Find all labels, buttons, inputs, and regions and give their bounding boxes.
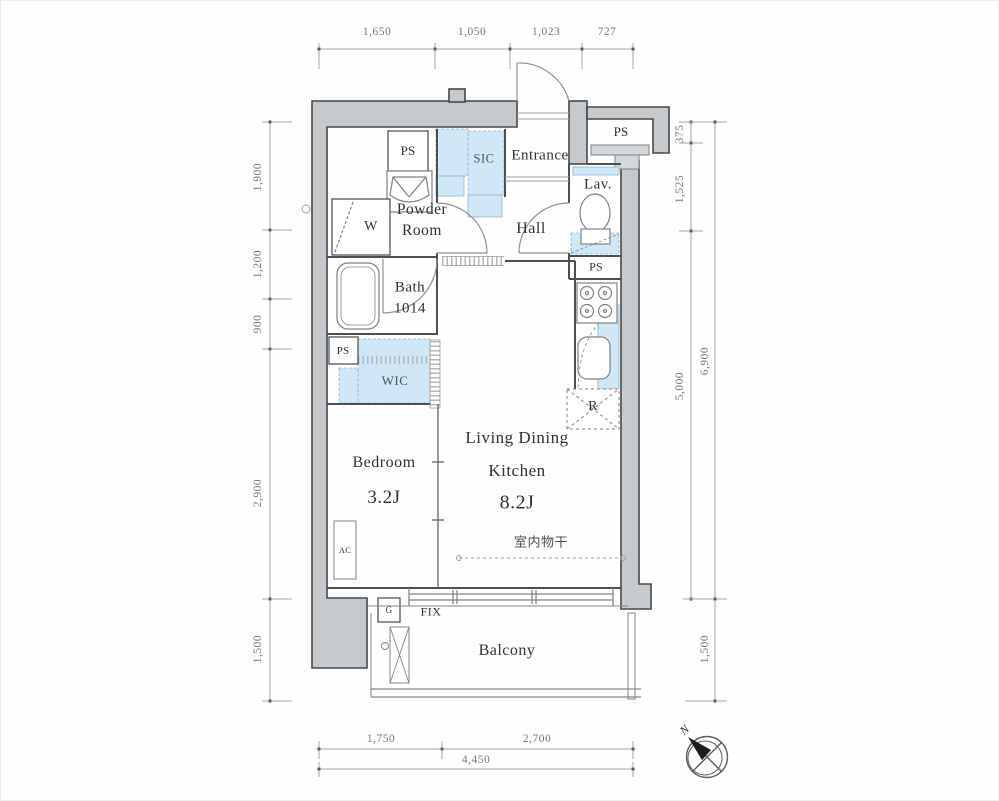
- walls-light: [591, 145, 649, 169]
- dim-right-inner-2: 1,525: [674, 175, 686, 203]
- label-fix-window: FIX: [421, 605, 442, 620]
- partition-bedroom-ldk: [432, 404, 444, 588]
- label-ps-below-lav: PS: [589, 260, 603, 275]
- dim-bottom-2: 2,700: [523, 733, 551, 745]
- wic-area: [358, 339, 430, 403]
- sic-step: [436, 176, 464, 196]
- toilet-tank: [581, 229, 610, 244]
- dim-left-3: 900: [252, 315, 264, 334]
- room-label-ldk-size: 8.2J: [500, 492, 535, 515]
- label-washer: W: [364, 219, 378, 235]
- entrance-step: [468, 195, 502, 217]
- room-label-hall: Hall: [516, 220, 546, 238]
- washer-box: [332, 199, 390, 255]
- room-label-balcony: Balcony: [479, 642, 536, 660]
- dim-top-1: 1,650: [363, 26, 391, 38]
- dim-right-inner-1: 375: [674, 125, 686, 144]
- wall-ps-bottom-bar: [591, 145, 649, 155]
- wic-area-left: [339, 368, 358, 403]
- label-ps-top-left: PS: [401, 143, 416, 159]
- room-label-lav: Lav.: [584, 177, 612, 194]
- dim-right-outer-2: 1,500: [699, 635, 711, 663]
- dim-left-5: 1,500: [252, 635, 264, 663]
- dim-left-2: 1,200: [252, 250, 264, 278]
- room-label-ldk-2: Kitchen: [488, 461, 545, 481]
- sic-area: [436, 129, 468, 176]
- room-label-wic: WIC: [382, 373, 409, 389]
- dim-bottom-1: 1,750: [367, 733, 395, 745]
- dim-top-2: 1,050: [458, 26, 486, 38]
- kitchen-sink: [578, 337, 610, 379]
- dim-top-3: 1,023: [532, 26, 560, 38]
- dim-left-4: 2,900: [252, 479, 264, 507]
- room-label-bath-2: 1014: [394, 301, 426, 318]
- label-gas: G: [386, 605, 393, 615]
- room-label-ldk-1: Living Dining: [465, 428, 568, 448]
- room-label-bath-1: Bath: [395, 280, 425, 297]
- wall-right: [621, 161, 651, 609]
- label-fridge: R: [588, 399, 598, 415]
- label-indoor-drying: 室内物干: [514, 532, 568, 551]
- toilet-bowl: [580, 194, 610, 232]
- dim-bottom-total: 4,450: [462, 754, 490, 766]
- label-ps-mid-left: PS: [337, 345, 350, 357]
- wall-pillar: [449, 89, 465, 102]
- wall-entrance-stub: [569, 101, 587, 164]
- indoor-drying-rail: [457, 556, 626, 561]
- windows: [368, 588, 628, 606]
- room-label-powder-1: Powder: [397, 201, 447, 219]
- balcony-drain: [382, 643, 389, 650]
- room-label-powder-2: Room: [402, 222, 442, 240]
- balcony-divider: [628, 613, 635, 699]
- lav-shelf: [573, 167, 619, 175]
- dim-left-1: 1,900: [252, 163, 264, 191]
- dim-top-4: 727: [598, 26, 617, 38]
- room-label-entrance: Entrance: [511, 148, 568, 165]
- dim-right-outer-1: 6,900: [699, 347, 711, 375]
- room-label-bedroom: Bedroom: [352, 454, 415, 472]
- label-ac: AC: [339, 545, 351, 555]
- floor-plan-drawing: [1, 1, 999, 801]
- wall-mark: [302, 205, 310, 213]
- entrance-door-arc: [517, 63, 569, 101]
- label-ps-top-right: PS: [614, 124, 629, 140]
- bathtub-inner: [341, 267, 375, 325]
- dim-right-inner-3: 5,000: [674, 372, 686, 400]
- compass: [687, 737, 728, 778]
- floor-plan-page: Entrance SIC Hall Lav. Powder Room Bath …: [0, 0, 999, 801]
- room-label-sic: SIC: [474, 152, 495, 167]
- room-label-bedroom-size: 3.2J: [367, 487, 400, 509]
